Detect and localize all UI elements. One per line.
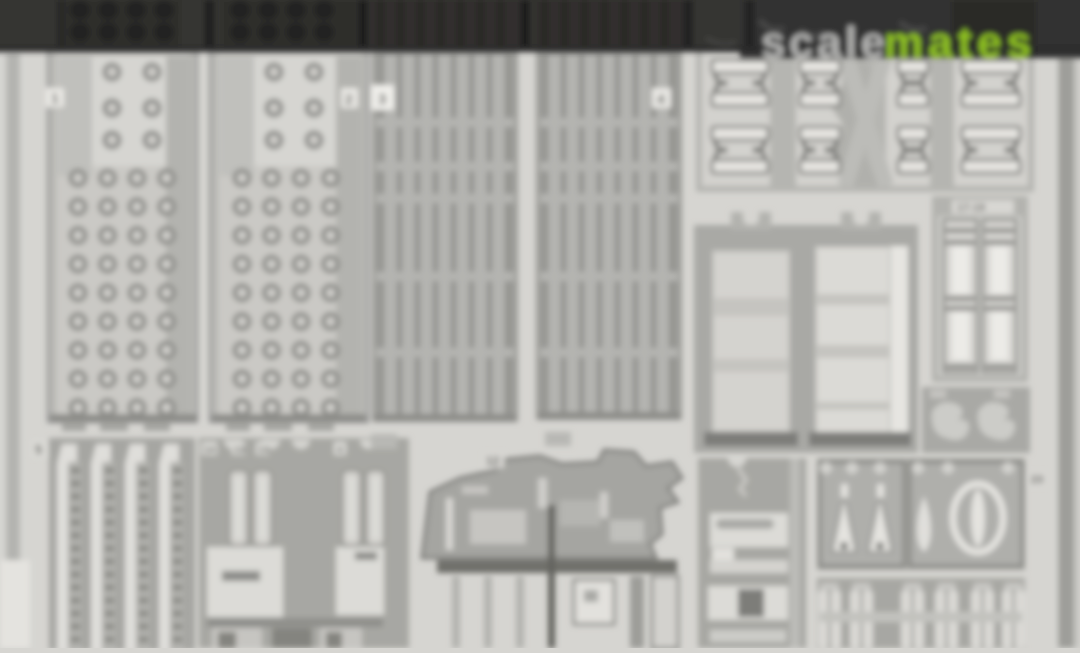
svg-text:scale: scale xyxy=(761,18,889,67)
svg-text:17-19: 17-19 xyxy=(957,202,985,214)
svg-text:2: 2 xyxy=(345,91,353,107)
svg-text:13: 13 xyxy=(234,445,246,456)
svg-text:23: 23 xyxy=(1031,474,1043,486)
svg-text:4: 4 xyxy=(337,445,343,456)
svg-text:13: 13 xyxy=(258,445,270,456)
svg-text:12: 12 xyxy=(486,454,500,468)
svg-text:4: 4 xyxy=(657,91,665,107)
svg-text:5: 5 xyxy=(35,442,42,457)
svg-text:3: 3 xyxy=(378,91,386,108)
svg-text:1: 1 xyxy=(51,90,59,106)
svg-text:14: 14 xyxy=(204,445,216,456)
svg-text:mates: mates xyxy=(884,18,1036,67)
